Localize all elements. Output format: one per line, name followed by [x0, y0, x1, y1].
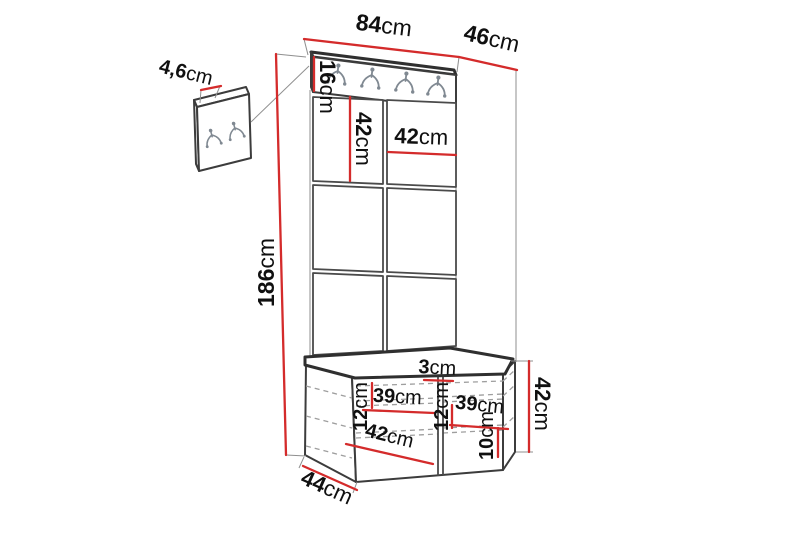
- wall-panel: [313, 273, 383, 355]
- dim-label-rail-height: 16cm: [315, 60, 340, 114]
- dim-label-shelf-gap-right: 12cm: [431, 382, 453, 431]
- dim-label-total-depth: 46cm: [461, 19, 522, 57]
- dimension-diagram: 4,6cm 84cm 46cm 16cm 42cm 42cm 186cm 3cm…: [0, 0, 800, 533]
- dim-label-panel-height: 42cm: [351, 112, 376, 166]
- dim-label-bench-height: 42cm: [530, 377, 555, 431]
- dim-line-divider-thickness: [424, 380, 453, 381]
- bench-right-face: [503, 361, 515, 470]
- dim-label-total-width: 84cm: [354, 9, 413, 42]
- dim-label-panel-width: 42cm: [394, 123, 449, 150]
- wall-panel: [313, 185, 383, 272]
- dim-label-inner-width-left: 39cm: [372, 385, 422, 410]
- dim-label-bottom-gap: 10cm: [476, 411, 498, 460]
- dim-line-total-depth: [459, 57, 517, 70]
- dim-label-total-height: 186cm: [253, 238, 279, 307]
- wall-panel: [387, 188, 456, 275]
- dim-label-detail-thickness: 4,6cm: [157, 56, 215, 91]
- bench-left-face: [305, 364, 356, 482]
- detail-pointer-line: [251, 66, 309, 122]
- wall-panel: [387, 276, 456, 351]
- dim-label-divider-thickness: 3cm: [418, 356, 457, 380]
